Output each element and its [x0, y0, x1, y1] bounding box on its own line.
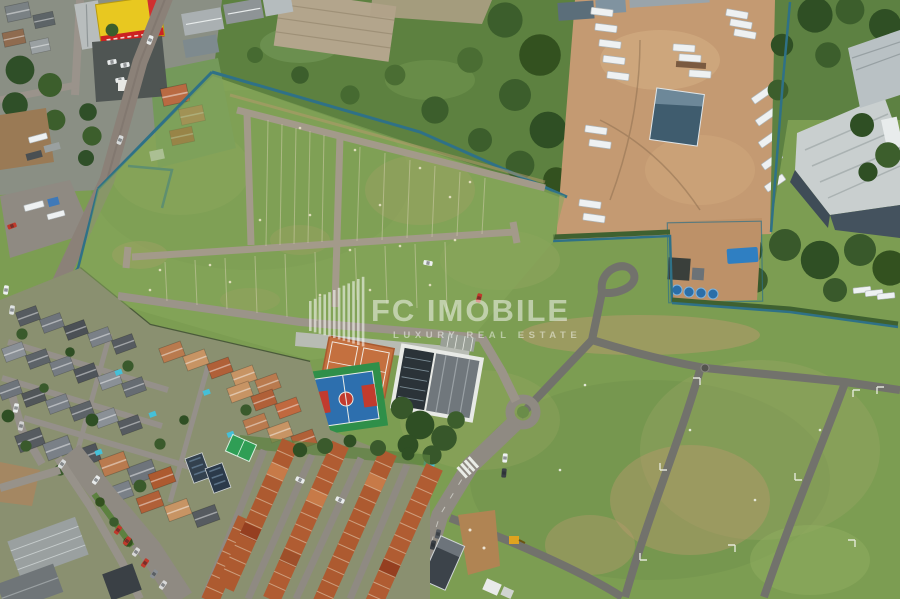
- utility-compound: [667, 218, 762, 303]
- white-truck: [502, 453, 508, 463]
- aerial-photo-stage: FC IMOBILE LUXURY REAL ESTATE: [0, 0, 900, 599]
- dark-car: [501, 468, 507, 478]
- industrial-truck-yard: [556, 0, 792, 241]
- watermark-brand: FC IMOBILE: [371, 293, 570, 328]
- mini-circle: [701, 364, 709, 372]
- watermark-tagline: LUXURY REAL ESTATE: [393, 330, 581, 341]
- blue-warehouse: [650, 88, 705, 146]
- blue-container: [727, 247, 759, 264]
- aerial-photo: FC IMOBILE LUXURY REAL ESTATE: [0, 0, 900, 599]
